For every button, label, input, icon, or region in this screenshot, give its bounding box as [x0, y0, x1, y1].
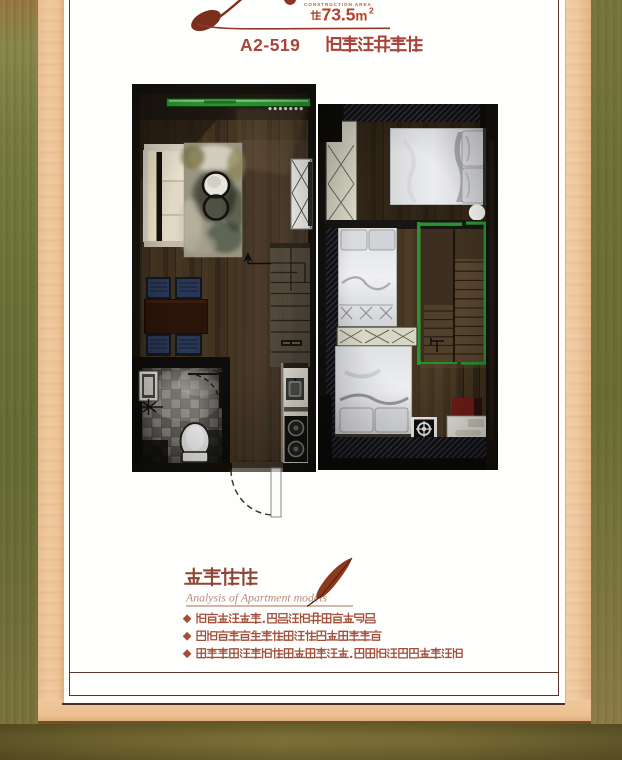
svg-text:A2-519: A2-519	[240, 35, 300, 55]
svg-text:Analysis of Apartment models: Analysis of Apartment models	[185, 591, 327, 605]
svg-text:2: 2	[369, 6, 374, 16]
svg-text:73.5m: 73.5m	[322, 5, 368, 25]
